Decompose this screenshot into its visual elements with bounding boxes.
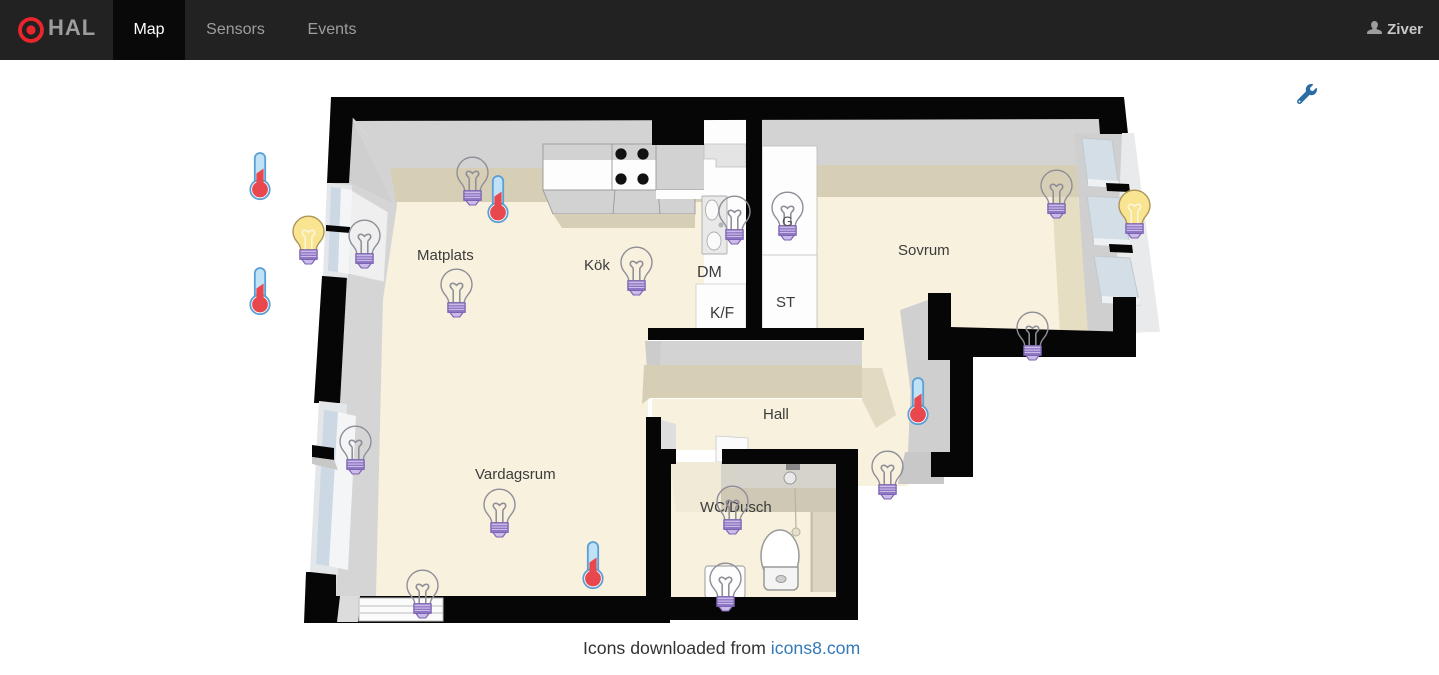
svg-text:Sovrum: Sovrum (898, 242, 950, 259)
svg-text:Hall: Hall (763, 406, 789, 423)
svg-text:K/F: K/F (710, 305, 734, 322)
svg-text:G: G (782, 213, 793, 229)
svg-text:Matplats: Matplats (417, 247, 474, 264)
svg-text:Vardagsrum: Vardagsrum (475, 466, 556, 483)
svg-text:Kök: Kök (584, 257, 610, 274)
svg-text:DM: DM (697, 264, 722, 281)
svg-text:Icons downloaded from icons8.c: Icons downloaded from icons8.com (583, 638, 860, 658)
svg-text:ST: ST (776, 294, 795, 311)
